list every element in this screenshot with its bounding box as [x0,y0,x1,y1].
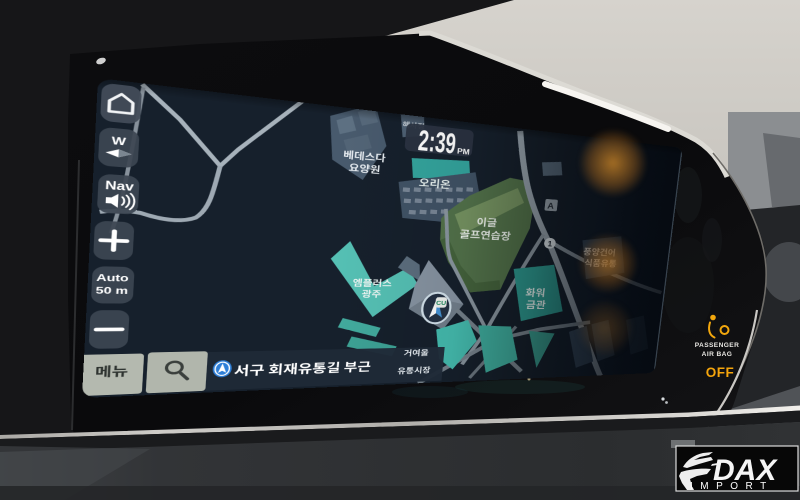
svg-text:OFF: OFF [706,365,735,380]
svg-text:Auto: Auto [96,272,129,284]
svg-text:PASSENGER: PASSENGER [695,342,740,349]
svg-text:W: W [111,135,126,149]
svg-text:IMPORT: IMPORT [690,481,774,492]
svg-text:AIR BAG: AIR BAG [702,351,733,358]
svg-text:50 m: 50 m [95,285,128,297]
svg-text:Nav: Nav [105,180,135,194]
